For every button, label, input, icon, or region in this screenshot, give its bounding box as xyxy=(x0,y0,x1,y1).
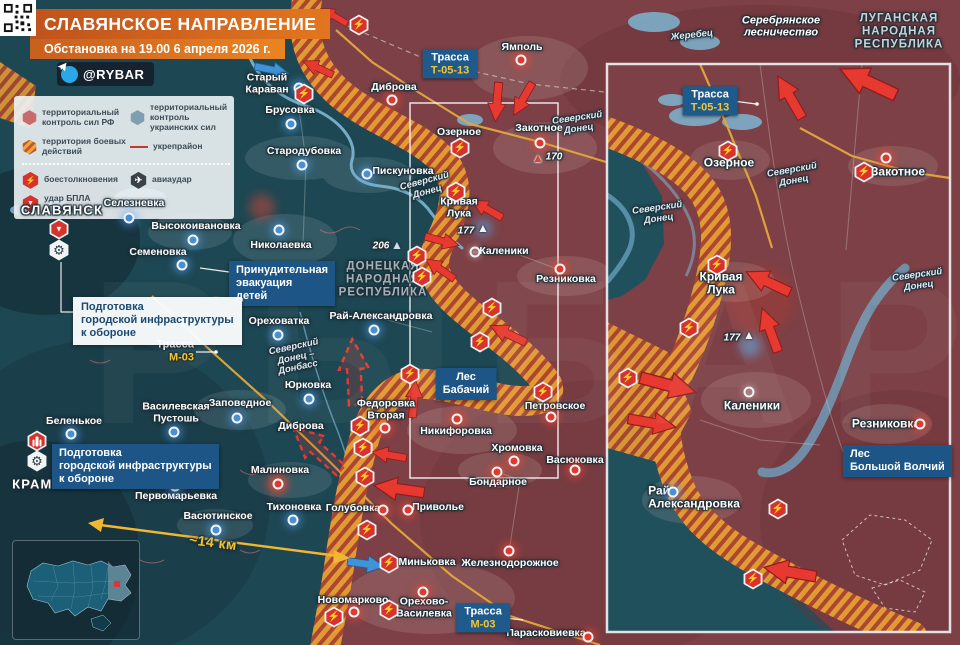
legend-geran-label: удар БПЛА «Герань» xyxy=(44,194,126,214)
legend-item-combat: территория боевых действий xyxy=(22,137,126,157)
page-subtitle: Обстановка на 19.00 6 апреля 2026 г. xyxy=(30,39,285,59)
ukraine-locator-map xyxy=(12,540,140,640)
rybar-handle: @RYBAR xyxy=(83,67,144,82)
fortified-line-swatch xyxy=(130,146,148,149)
combat-swatch xyxy=(22,140,37,155)
inset-map xyxy=(607,56,960,645)
rybar-badge[interactable]: @RYBAR xyxy=(57,62,154,86)
legend-fortified-label: укрепрайон xyxy=(153,142,203,152)
rf-swatch xyxy=(22,110,37,125)
ukraine-minimap-svg xyxy=(13,541,139,639)
title-banner: СЛАВЯНСКОЕ НАПРАВЛЕНИЕ Обстановка на 19.… xyxy=(30,9,330,59)
crimea-shape xyxy=(91,615,111,631)
location-dot xyxy=(114,581,120,587)
pointer-dot2 xyxy=(214,350,218,354)
legend-airstrike-label: авиаудар xyxy=(152,175,192,185)
legend-ua-label: территориальный контроль украинских сил xyxy=(150,103,230,132)
telegram-icon xyxy=(61,66,78,83)
legend-item-rf: территориальный контроль сил РФ xyxy=(22,103,126,132)
legend-item-clashes: ⚡боестолкновения xyxy=(22,172,126,189)
airstrike-icon: ✈ xyxy=(130,172,147,189)
legend-divider xyxy=(22,163,230,166)
legend-item-geran: ▼удар БПЛА «Герань» xyxy=(22,194,126,214)
map-canvas: РЫБАР СЛАВЯНСКОЕ НАПРАВЛЕНИЕ Обстановка … xyxy=(0,0,960,645)
legend-item-fortified: укрепрайон xyxy=(130,137,230,157)
legend-clashes-label: боестолкновения xyxy=(44,175,118,185)
legend-item-airstrike: ✈авиаудар xyxy=(130,172,230,189)
page-title: СЛАВЯНСКОЕ НАПРАВЛЕНИЕ xyxy=(30,9,330,39)
legend-rf-label: территориальный контроль сил РФ xyxy=(42,108,126,128)
geran-drone-icon: ▼ xyxy=(22,195,39,212)
qr-code xyxy=(0,0,36,36)
legend-panel: территориальный контроль сил РФ территор… xyxy=(14,96,234,219)
ua-swatch xyxy=(130,110,145,125)
legend-combat-label: территория боевых действий xyxy=(42,137,126,157)
pointer-dot xyxy=(755,102,759,106)
clashes-icon: ⚡ xyxy=(22,172,39,189)
legend-item-ua: территориальный контроль украинских сил xyxy=(130,103,230,132)
